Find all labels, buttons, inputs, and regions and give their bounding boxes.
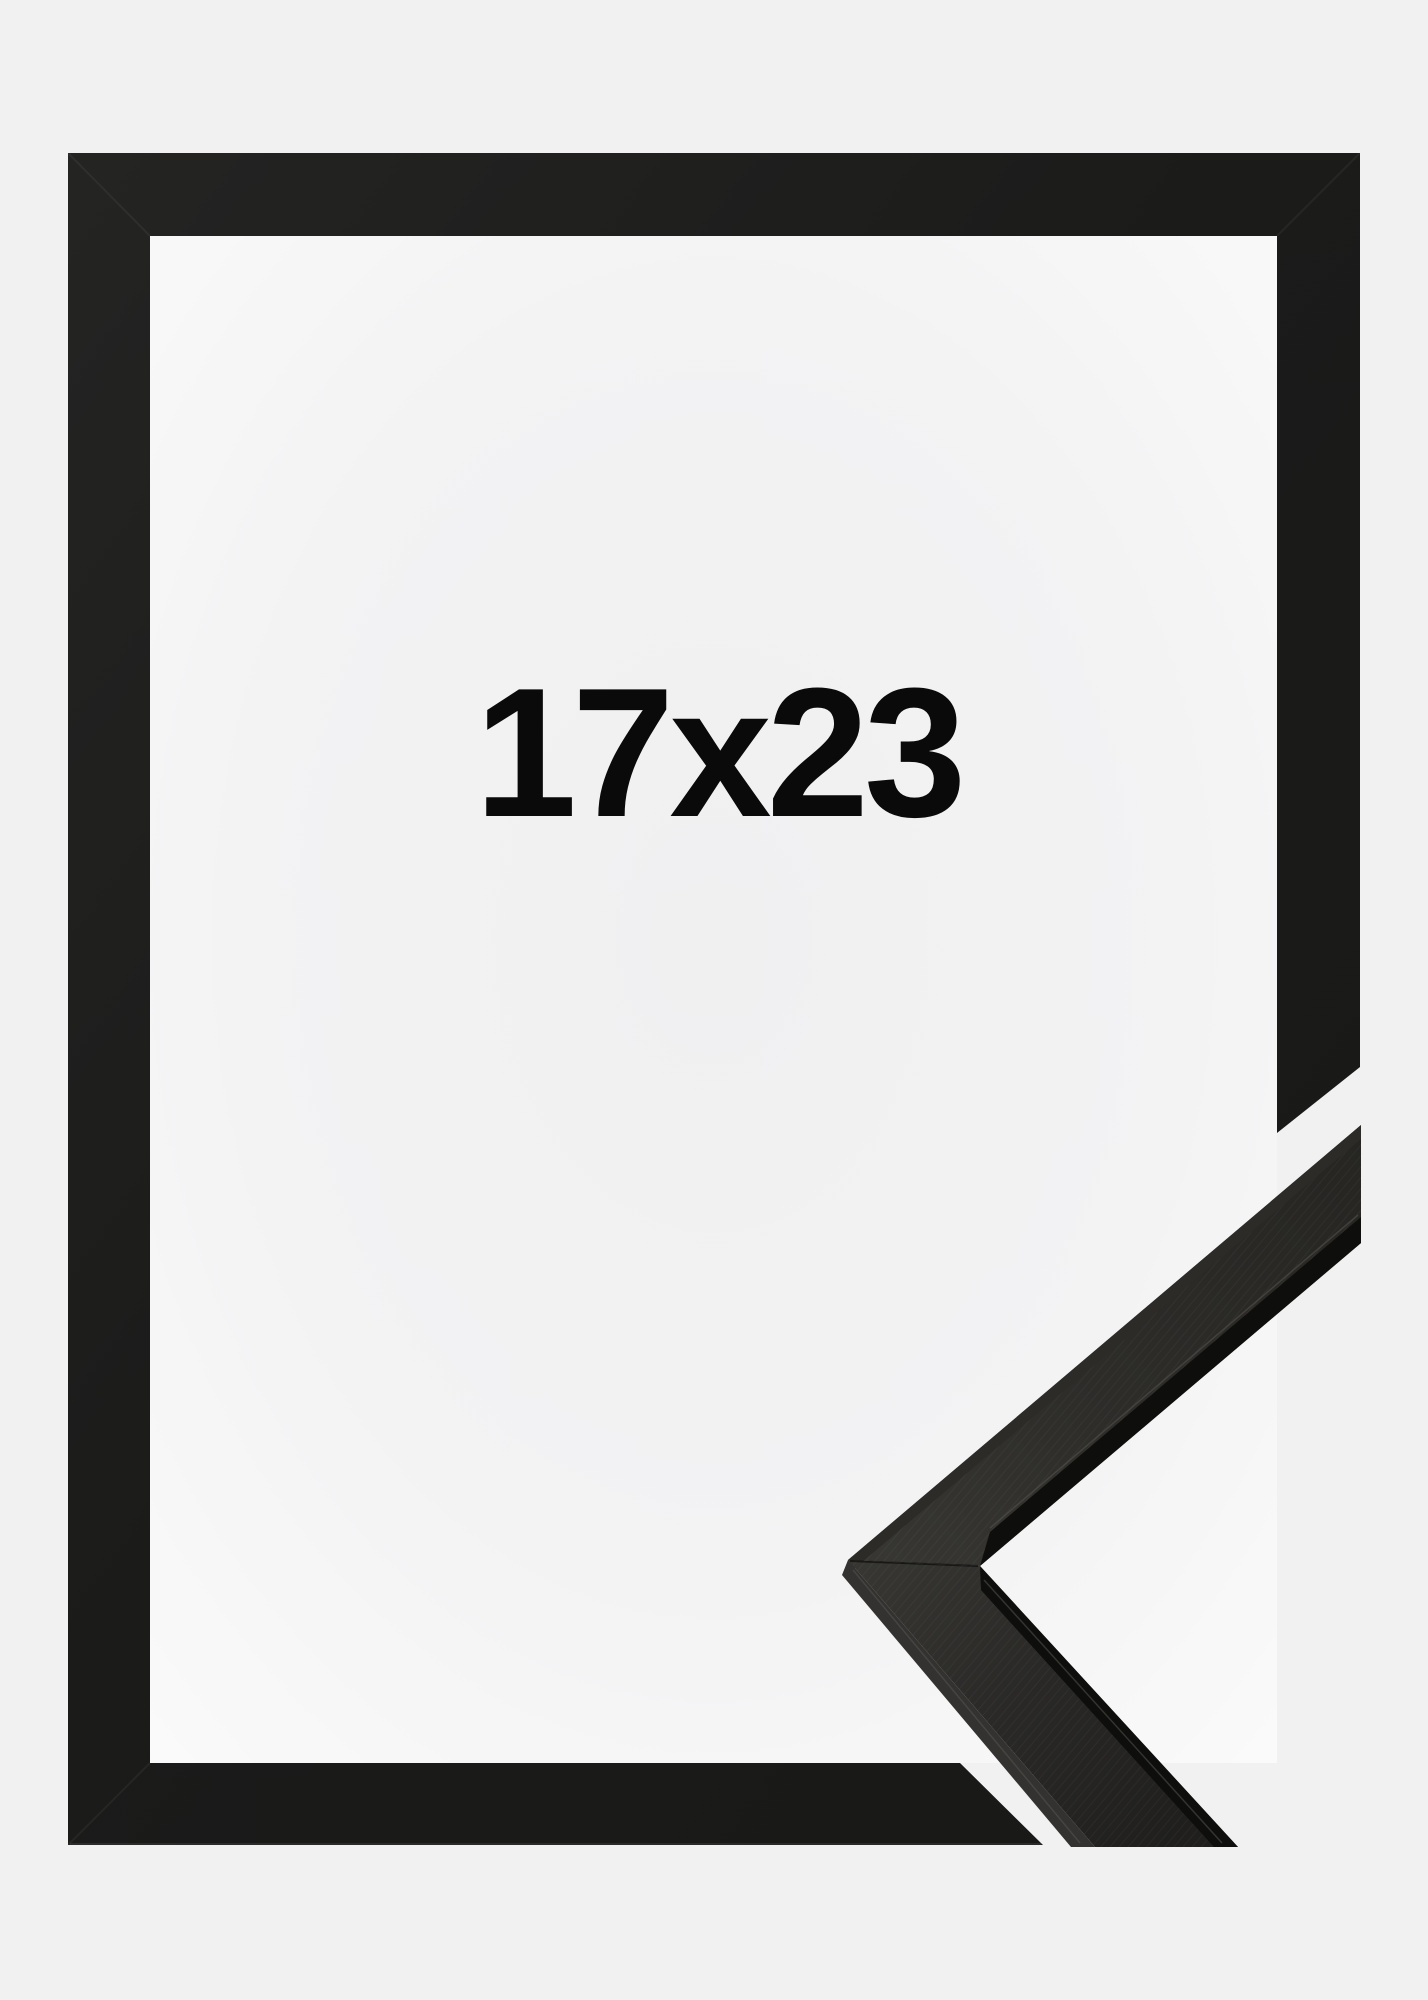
size-label: 17x23: [475, 660, 962, 844]
frame-graphic: [0, 0, 1428, 2000]
frame-opening: [150, 236, 1277, 1763]
product-image: 17x23: [0, 0, 1428, 2000]
